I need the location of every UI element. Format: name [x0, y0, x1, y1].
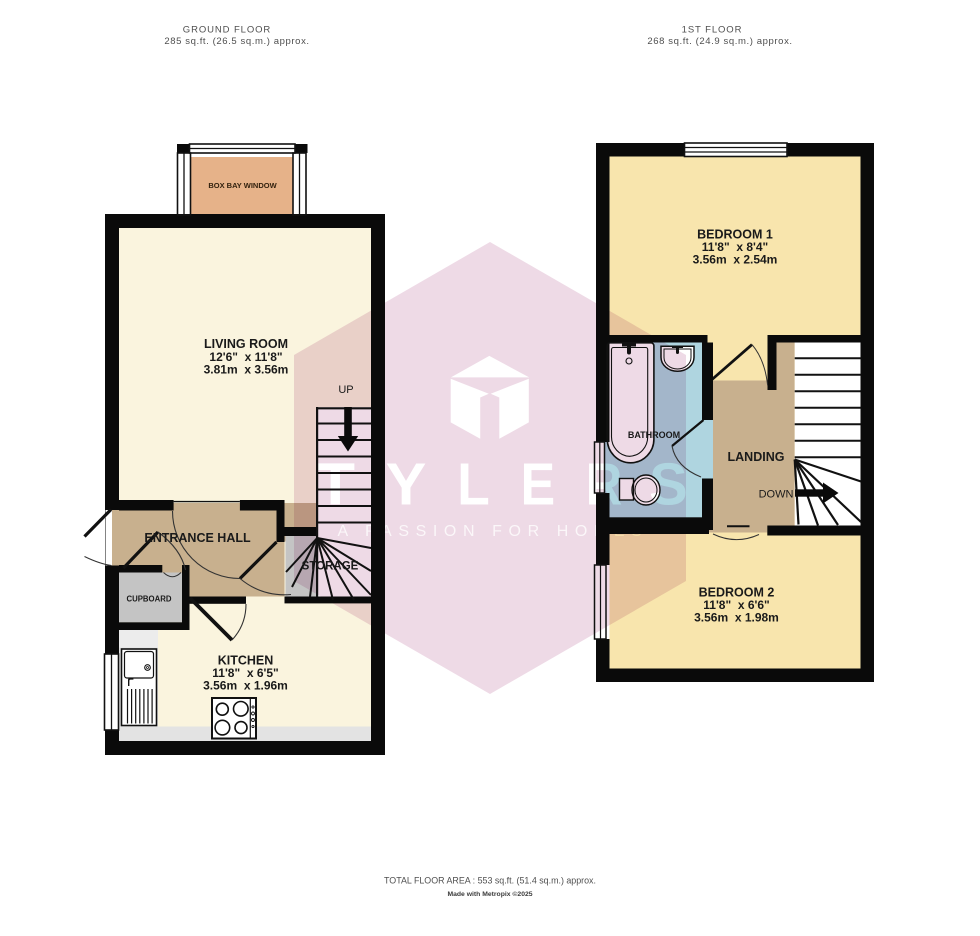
svg-text:3.56m x 1.96m: 3.56m x 1.96m [203, 679, 288, 693]
svg-text:285 sq.ft. (26.5 sq.m.) approx: 285 sq.ft. (26.5 sq.m.) approx. [164, 36, 309, 47]
svg-text:UP: UP [338, 384, 353, 396]
svg-text:STORAGE: STORAGE [302, 561, 359, 573]
svg-text:BOX BAY WINDOW: BOX BAY WINDOW [208, 181, 277, 190]
svg-text:LIVING ROOM: LIVING ROOM [204, 337, 288, 351]
svg-text:1ST FLOOR: 1ST FLOOR [682, 25, 743, 36]
svg-text:ENTRANCE HALL: ENTRANCE HALL [144, 531, 251, 545]
svg-text:3.56m x 2.54m: 3.56m x 2.54m [693, 253, 778, 267]
svg-text:Made with Metropix ©2025: Made with Metropix ©2025 [447, 890, 532, 898]
svg-text:TOTAL FLOOR AREA : 553 sq.ft.: TOTAL FLOOR AREA : 553 sq.ft. (51.4 sq.m… [384, 876, 596, 886]
svg-text:DOWN: DOWN [759, 489, 794, 501]
svg-text:3.81m x 3.56m: 3.81m x 3.56m [204, 363, 289, 377]
svg-text:BATHROOM: BATHROOM [628, 430, 680, 440]
svg-text:GROUND FLOOR: GROUND FLOOR [183, 25, 271, 36]
svg-text:CUPBOARD: CUPBOARD [126, 595, 171, 604]
svg-text:LANDING: LANDING [728, 450, 785, 464]
svg-text:268 sq.ft. (24.9 sq.m.) approx: 268 sq.ft. (24.9 sq.m.) approx. [647, 36, 792, 47]
svg-text:3.56m x 1.98m: 3.56m x 1.98m [694, 611, 779, 625]
